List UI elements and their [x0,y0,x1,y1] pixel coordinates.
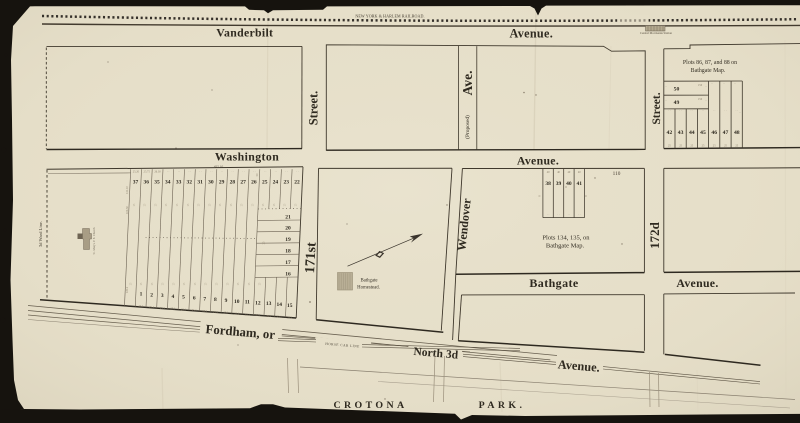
svg-text:25.1: 25.1 [160,307,165,310]
svg-text:25: 25 [262,180,268,186]
svg-text:CROTONA: CROTONA [333,400,407,411]
svg-text:··: ·· [665,86,667,89]
svg-text:29: 29 [219,180,225,186]
svg-text:NEW YORK & HARLEM RAILROAD.: NEW YORK & HARLEM RAILROAD. [355,14,424,19]
svg-text:· ·: · · [285,171,288,174]
svg-text:· ·: · · [679,110,682,113]
svg-text:10: 10 [234,299,240,305]
svg-text:··: ·· [705,100,707,103]
svg-text:20: 20 [285,226,291,232]
svg-text:25.1: 25.1 [202,310,207,313]
svg-text:· ·: · · [547,214,550,217]
svg-text:50: 50 [674,86,680,92]
svg-text:26: 26 [251,180,257,186]
svg-text:25.1: 25.1 [224,312,229,315]
svg-text:2: 2 [150,292,153,298]
svg-text:· ·: · · [221,171,224,174]
svg-text:· ·: · · [253,171,256,174]
svg-text:121.10: 121.10 [126,186,129,194]
svg-text:Street.: Street. [650,92,663,124]
svg-text:Ave.: Ave. [460,70,475,95]
svg-text:25.1: 25.1 [245,313,250,316]
svg-text:Homestead.: Homestead. [357,285,380,290]
svg-text:31: 31 [197,180,203,186]
svg-text:(Proposed): (Proposed) [464,115,471,139]
svg-text:38: 38 [545,181,551,187]
svg-text:172d: 172d [647,221,662,249]
svg-text:48: 48 [734,130,740,136]
svg-text:7: 7 [203,296,206,302]
svg-text:25.1: 25.1 [139,305,144,308]
svg-text:· ·: · · [578,214,581,217]
svg-text:19: 19 [285,237,291,243]
svg-text:4: 4 [172,294,175,300]
svg-text:9: 9 [225,298,228,304]
svg-text:25.1: 25.1 [149,306,154,309]
svg-text:40: 40 [566,181,572,187]
svg-text:26.30: 26.30 [154,171,161,174]
svg-text:12: 12 [255,300,261,306]
svg-text:··: ·· [665,100,667,103]
svg-text:25.1: 25.1 [234,313,239,316]
svg-text:41: 41 [577,181,583,187]
svg-text:37: 37 [133,180,139,186]
svg-text:36: 36 [144,180,150,186]
svg-text:6: 6 [193,296,196,302]
svg-text:30: 30 [208,180,214,186]
svg-text:3: 3 [161,293,164,299]
svg-text:··: ·· [723,82,725,85]
svg-text:Bathgate Map.: Bathgate Map. [546,242,585,249]
svg-text:45: 45 [700,130,706,136]
svg-text:110: 110 [613,171,621,177]
svg-text:100.50: 100.50 [126,206,129,214]
svg-text:··: ·· [705,86,707,89]
svg-text:46: 46 [711,130,717,136]
svg-text:Central Morrisania Station: Central Morrisania Station [640,31,672,35]
svg-text:25.20: 25.20 [133,171,140,174]
svg-text:Plots 134, 135, on: Plots 134, 135, on [542,235,590,242]
svg-text:25.1: 25.1 [277,316,282,319]
svg-text:32: 32 [187,180,193,186]
svg-text:··: ·· [734,82,736,85]
svg-text:25.1: 25.1 [181,308,186,311]
svg-text:18: 18 [285,249,291,255]
svg-text:25.1: 25.1 [255,314,260,317]
svg-text:16: 16 [285,271,291,277]
svg-text:49: 49 [674,100,680,106]
svg-text:Avenue.: Avenue. [676,276,718,290]
svg-text:··: ·· [739,112,741,115]
svg-text:Bathgate Map.: Bathgate Map. [691,68,726,74]
svg-text:PARK.: PARK. [479,400,526,411]
svg-text:Street.: Street. [306,91,320,126]
svg-text:Vanderbilt: Vanderbilt [216,25,273,39]
svg-text:Bathgate: Bathgate [360,279,377,284]
svg-text:Bathgate: Bathgate [529,276,578,290]
svg-text:25.75: 25.75 [144,171,151,174]
svg-text:43: 43 [678,130,684,136]
svg-text:39: 39 [556,181,562,187]
svg-text:21: 21 [285,214,291,220]
svg-text:42: 42 [667,130,673,136]
svg-text:150: 150 [698,84,703,87]
svg-text:44: 44 [689,130,695,136]
svg-text:Avenue.: Avenue. [510,27,554,41]
svg-text:34: 34 [165,180,171,186]
svg-text:17: 17 [285,260,291,266]
svg-text:25.1: 25.1 [287,317,292,320]
svg-text:3d Ward Line.: 3d Ward Line. [38,221,43,247]
svg-text:Washington: Washington [215,150,279,164]
svg-text:22: 22 [294,180,300,186]
svg-text:28: 28 [230,180,236,186]
svg-text:27: 27 [240,180,246,186]
svg-text:8: 8 [214,297,217,303]
svg-text:47: 47 [723,130,729,136]
svg-text:· ·: · · [568,214,571,217]
svg-text:· ·: · · [178,171,181,174]
svg-text:· ·: · · [210,171,213,174]
svg-text:1: 1 [140,292,143,298]
svg-text:· ·: · · [713,110,716,113]
svg-text:5: 5 [182,295,185,301]
svg-text:· ·: · · [275,171,278,174]
svg-text:11: 11 [245,300,250,306]
svg-text:· ·: · · [557,214,560,217]
svg-text:25.1: 25.1 [266,315,271,318]
svg-text:13: 13 [266,301,272,307]
svg-text:· ·: · · [691,110,694,113]
svg-text:33: 33 [176,180,182,186]
svg-text:· ·: · · [296,171,299,174]
svg-text:25.1: 25.1 [213,311,218,314]
svg-text:15: 15 [287,303,293,309]
svg-text:25.1: 25.1 [170,308,175,311]
svg-text:· ·: · · [199,171,202,174]
svg-text:23: 23 [283,180,289,186]
svg-text:24: 24 [273,180,279,186]
svg-text:· ·: · · [702,110,705,113]
svg-text:25.1: 25.1 [192,309,197,312]
svg-text:St. Mary's P. E. Church: St. Mary's P. E. Church [92,227,96,254]
svg-text:Plots 86, 87, and 88 on: Plots 86, 87, and 88 on [683,60,737,66]
svg-text:35: 35 [154,180,160,186]
svg-text:· ·: · · [232,171,235,174]
svg-text:150: 150 [698,98,703,101]
svg-text:125.2: 125.2 [126,286,129,293]
svg-text:14: 14 [276,302,282,308]
svg-text:· ·: · · [736,110,739,113]
svg-text:· ·: · · [264,171,267,174]
svg-text:Avenue.: Avenue. [517,154,559,168]
svg-text:· ·: · · [167,171,170,174]
svg-text:· ·: · · [724,110,727,113]
svg-text:· ·: · · [189,171,192,174]
svg-text:· ·: · · [242,171,245,174]
svg-text:··: ·· [711,82,713,85]
svg-text:· ·: · · [668,110,671,113]
